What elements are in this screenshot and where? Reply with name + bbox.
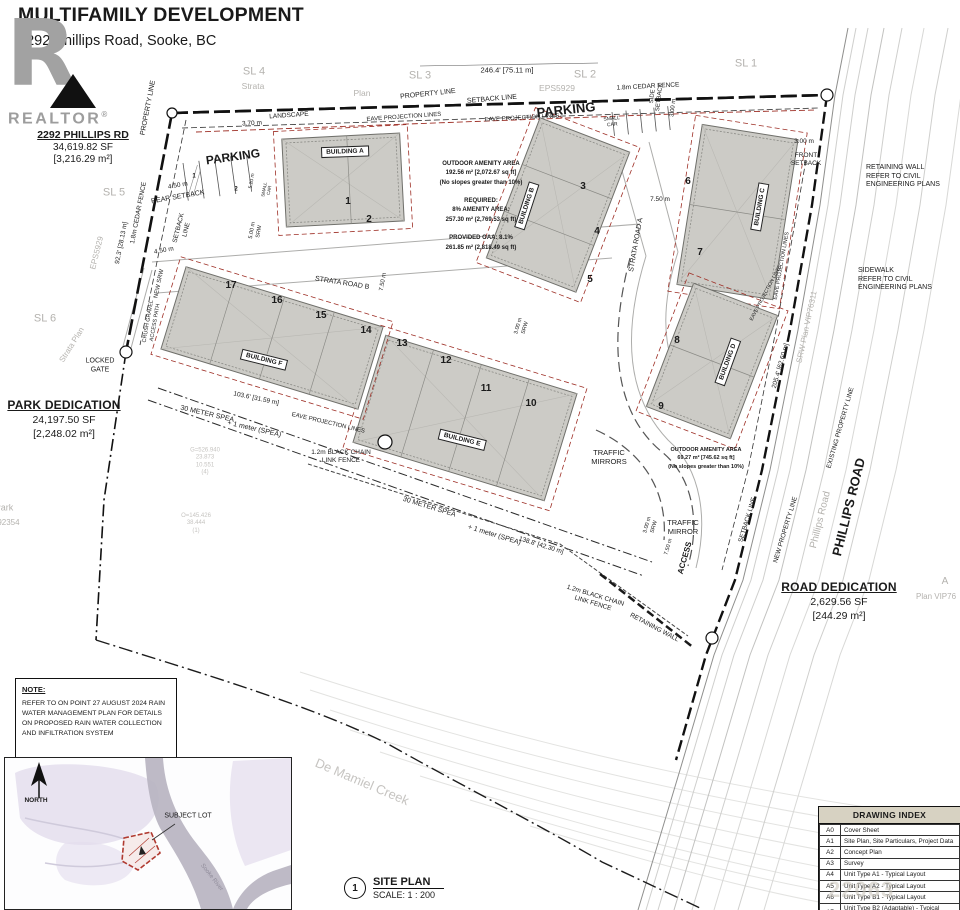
building-a (273, 125, 412, 236)
retaining-wall-line (600, 574, 694, 648)
sheet-number: A3 (820, 858, 841, 869)
parking-stalls-west (183, 154, 252, 201)
key-map-inset (4, 757, 292, 910)
site-plan-scale: SCALE: 1 : 200 (373, 890, 444, 900)
outdoor-amenity-main: OUTDOOR AMENITY AREA 192.56 m² [2,072.67… (422, 160, 540, 253)
park-dedication-sf: 24,197.50 SF (2, 414, 126, 426)
sheet-number: A7 (820, 903, 841, 910)
dimension-line (420, 63, 598, 66)
realtor-logo: R REALTOR® (6, 10, 156, 130)
watermark: 22063 (828, 877, 894, 903)
parcel-area-sf: 34,619.82 SF (18, 142, 148, 153)
sheet-title: Cover Sheet (841, 825, 960, 836)
sheet-title: Unit Type B2 (Adaptable) - Typical Layou… (841, 903, 960, 910)
note-box: NOTE: REFER TO ON POINT 27 AUGUST 2024 R… (15, 678, 177, 758)
drawing-index-row: A1Site Plan, Site Particulars, Project D… (820, 836, 960, 847)
realtor-wordmark: REALTOR® (8, 110, 107, 128)
chain-link-fence-line (308, 464, 688, 636)
road-dedication: ROAD DEDICATION 2,629.56 SF [244.29 m²] (770, 580, 908, 622)
parcel-info: 2292 PHILLIPS RD 34,619.82 SF [3,216.29 … (18, 129, 148, 165)
sheet-title: Site Plan, Site Particulars, Project Dat… (841, 836, 960, 847)
park-dedication: PARK DEDICATION 24,197.50 SF [2,248.02 m… (2, 398, 126, 440)
site-plan-label: SITE PLAN (373, 876, 444, 889)
drawing-index-row: A2Concept Plan (820, 847, 960, 858)
parcel-address: 2292 PHILLIPS RD (18, 129, 148, 141)
site-plan-title-block: 1 SITE PLAN SCALE: 1 : 200 (344, 876, 444, 900)
drawing-index-row: A7Unit Type B2 (Adaptable) - Typical Lay… (820, 903, 960, 910)
road-dedication-m2: [244.29 m²] (770, 610, 908, 622)
sheet-title: Survey (841, 858, 960, 869)
road-dedication-sf: 2,629.56 SF (770, 596, 908, 608)
key-map-graphic (5, 758, 291, 909)
sheet-number: A0 (820, 825, 841, 836)
sheet-number: A1 (820, 836, 841, 847)
note-heading: NOTE: (22, 685, 170, 694)
building-c (668, 115, 807, 308)
park-dedication-m2: [2,248.02 m²] (2, 428, 126, 440)
building-e (343, 325, 587, 511)
note-body: REFER TO ON POINT 27 AUGUST 2024 RAIN WA… (22, 699, 170, 738)
building-f (151, 257, 393, 419)
sheet-reference-number: 1 (344, 877, 366, 899)
realtor-text: REALTOR (8, 110, 101, 127)
registered-mark: ® (101, 110, 107, 119)
outdoor-amenity-secondary: OUTDOOR AMENITY AREA 69.27 m² [745.62 sq… (648, 446, 764, 471)
drawing-index-row: A0Cover Sheet (820, 825, 960, 836)
drawing-index-title: DRAWING INDEX (819, 807, 960, 824)
site-plan-sheet: MULTIFAMILY DEVELOPMENT 2292 Phillips Ro… (0, 0, 960, 910)
park-dedication-title: PARK DEDICATION (2, 398, 126, 412)
building-d (636, 273, 788, 449)
drawing-index-row: A3Survey (820, 858, 960, 869)
sheet-title: Concept Plan (841, 847, 960, 858)
parking-stalls-east (612, 106, 670, 136)
realtor-triangle-icon (50, 74, 96, 108)
road-dedication-title: ROAD DEDICATION (770, 580, 908, 594)
sheet-number: A2 (820, 847, 841, 858)
parcel-area-m2: [3,216.29 m²] (18, 154, 148, 165)
